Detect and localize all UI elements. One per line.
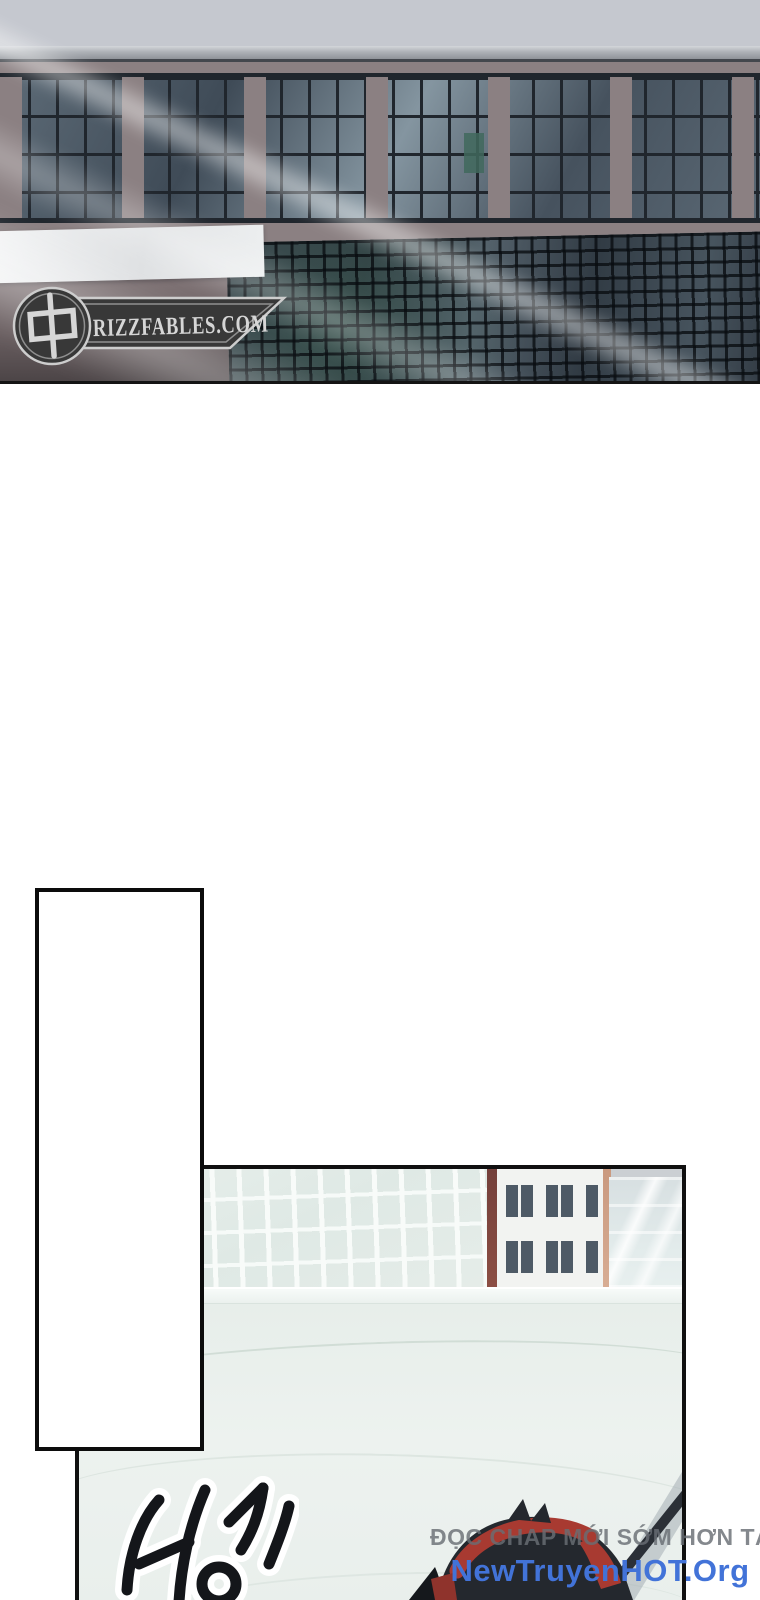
watermark-site-text: RIZZFABLES.COM xyxy=(93,311,270,343)
panel-building-exterior: RIZZFABLES.COM xyxy=(0,0,760,384)
watermark-badge: RIZZFABLES.COM xyxy=(6,284,298,372)
promo-overlay: ĐỌC CHAP MỚI SỚM HƠN TẠI NewTruyenHOT.Or… xyxy=(430,1524,760,1589)
upper-window-row xyxy=(0,73,760,223)
roofline xyxy=(0,46,760,62)
hair-spikes xyxy=(509,1499,551,1523)
blank-signboard xyxy=(0,225,265,284)
webtoon-page: RIZZFABLES.COM xyxy=(0,0,760,1600)
curtain-wall-grid xyxy=(226,231,760,384)
green-window-pane xyxy=(464,133,484,173)
promo-site-link[interactable]: NewTruyenHOT.Org xyxy=(430,1553,760,1589)
promo-line1: ĐỌC CHAP MỚI SỚM HƠN TẠI xyxy=(430,1524,760,1551)
panel-blank xyxy=(35,888,204,1451)
sky xyxy=(0,0,760,52)
